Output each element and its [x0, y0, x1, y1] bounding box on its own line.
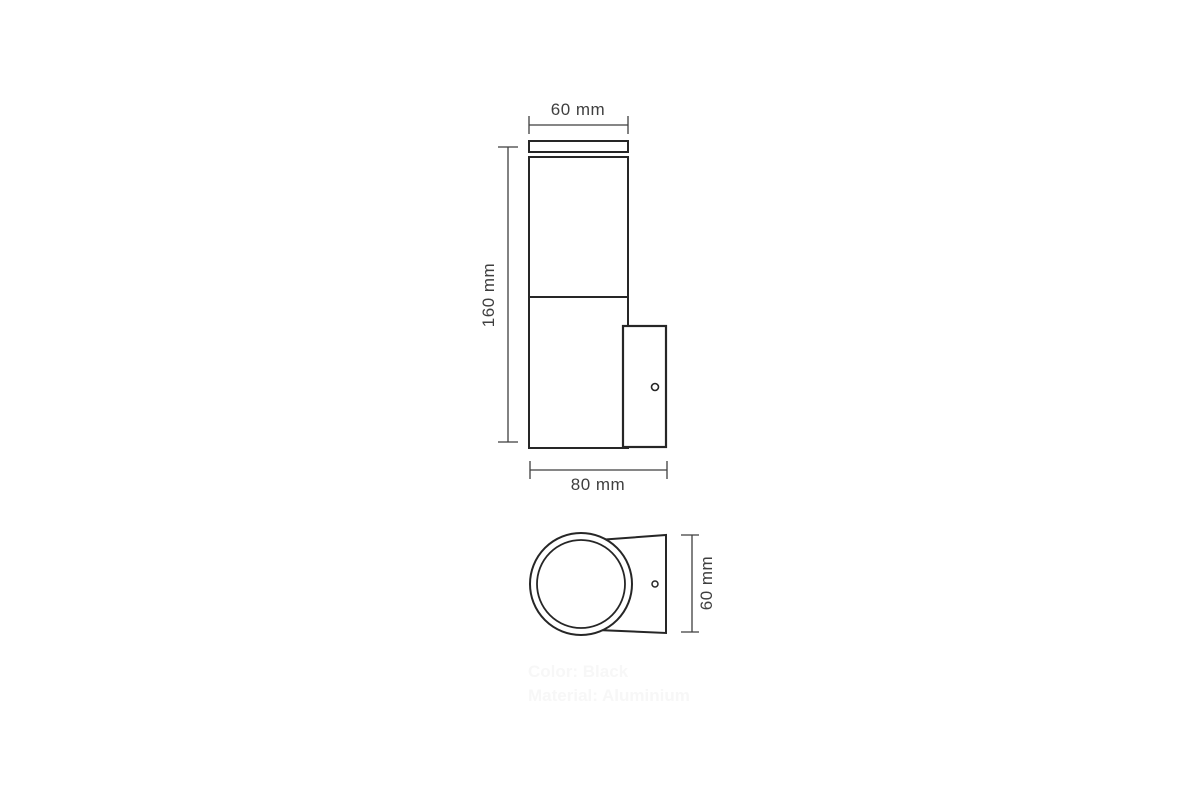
lamp-body: [529, 157, 628, 448]
technical-drawing-page: 60 mm 160 mm 80 mm: [0, 0, 1200, 800]
dimension-depth: 60 mm: [681, 535, 716, 632]
dimension-top-width: 60 mm: [529, 100, 628, 134]
wall-lamp-technical-drawing: 60 mm 160 mm 80 mm: [0, 0, 1200, 800]
dimension-height: 160 mm: [479, 147, 518, 442]
note-color: Color: Black: [528, 662, 629, 681]
lamp-cylinder-outer: [530, 533, 632, 635]
note-material: Material: Aluminium: [528, 686, 690, 705]
dimension-label-height: 160 mm: [479, 263, 498, 327]
dimension-label-depth: 60 mm: [697, 556, 716, 610]
lamp-top-cap: [529, 141, 628, 152]
front-view: [529, 141, 666, 448]
dimension-bottom-width: 80 mm: [530, 461, 667, 494]
dimension-label-bottom-width: 80 mm: [571, 475, 625, 494]
mounting-bracket: [623, 326, 666, 447]
spec-notes: Color: Black Material: Aluminium: [528, 662, 690, 705]
bottom-view: [530, 533, 666, 635]
dimension-label-top-width: 60 mm: [551, 100, 605, 119]
